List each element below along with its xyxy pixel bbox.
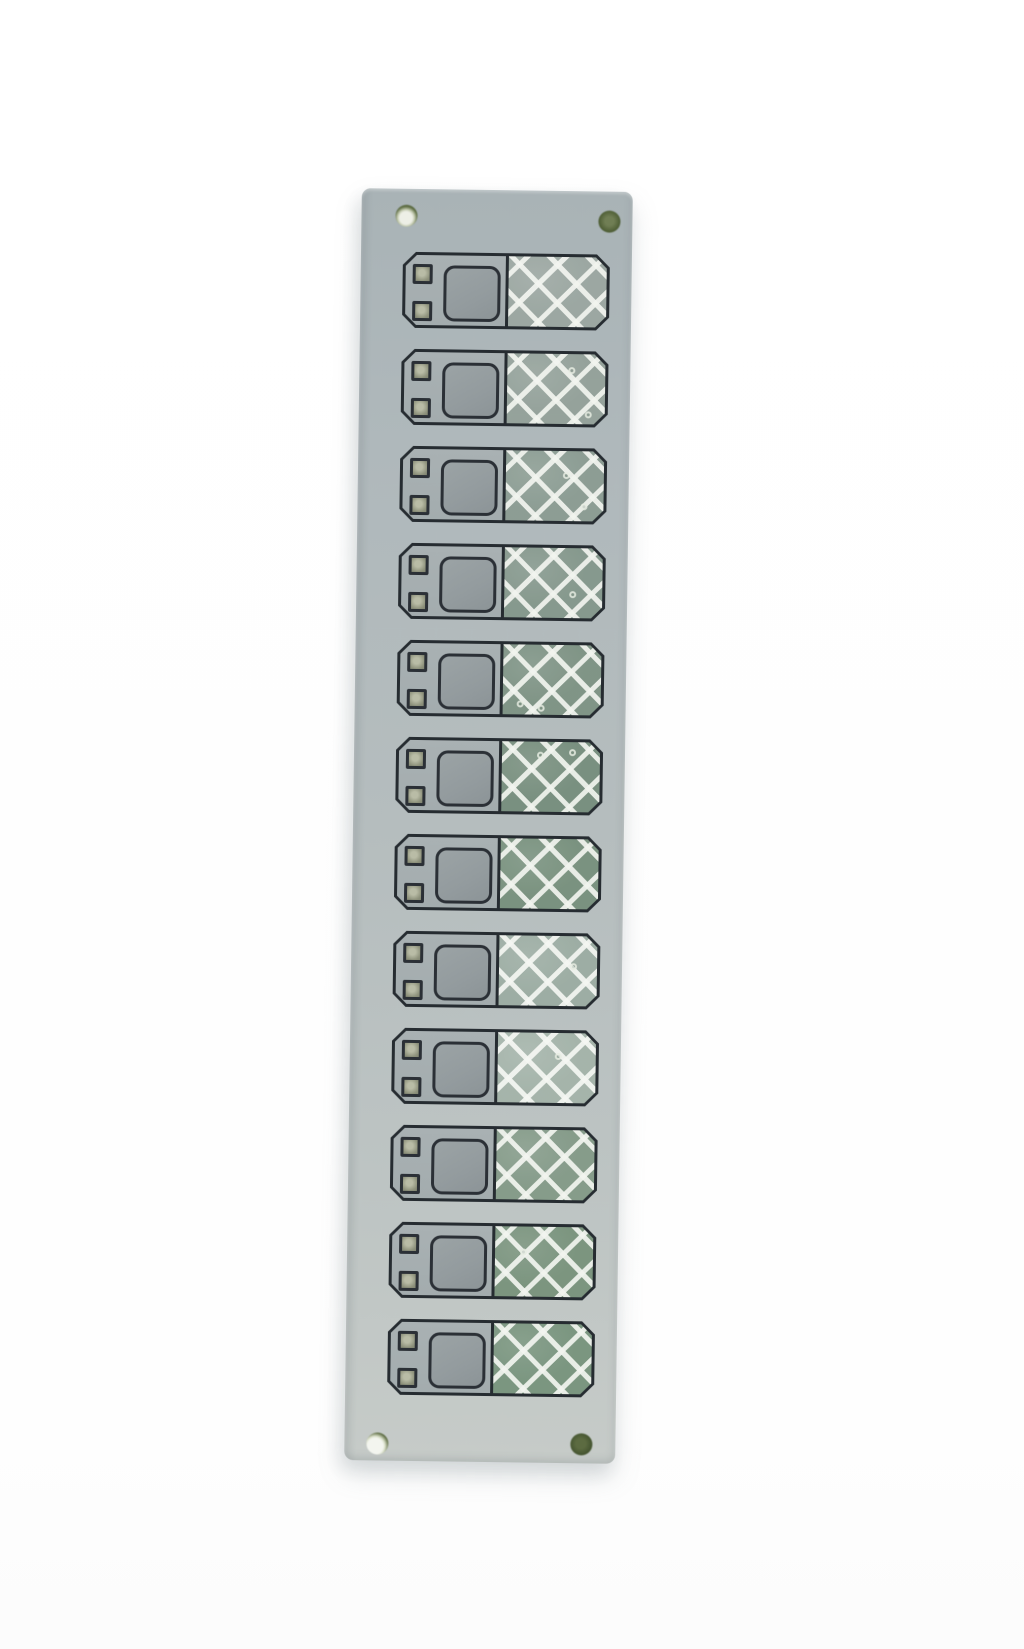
- small-contact-pad-bottom: [400, 1174, 420, 1194]
- electrode-left-region-outline: [391, 1028, 498, 1105]
- circuit-unit-12: [387, 1319, 595, 1398]
- small-contact-pad-top: [413, 264, 433, 284]
- small-contact-pad-bottom: [403, 980, 423, 1000]
- large-contact-pad: [443, 265, 501, 322]
- circuit-unit-8: [392, 931, 600, 1010]
- crosshatch-electrode-surface: [493, 1323, 592, 1394]
- crosshatch-electrode-outline: [504, 350, 609, 427]
- circuit-unit-6: [395, 737, 603, 816]
- glaze-bubble-speck: [569, 591, 576, 598]
- circuit-unit-5: [397, 640, 605, 719]
- electrode-left-region-outline: [401, 349, 508, 426]
- electrode-left-region-outline: [387, 1319, 494, 1396]
- crosshatch-electrode-surface: [504, 547, 603, 618]
- electrode-left-surface: [397, 837, 498, 908]
- electrode-left-region-outline: [388, 1222, 495, 1299]
- photo-background: [0, 0, 1024, 1649]
- small-contact-pad-bottom: [405, 786, 425, 806]
- glaze-bubble-speck: [516, 700, 523, 707]
- mounting-hole-bottom-right: [570, 1433, 592, 1455]
- large-contact-pad: [442, 362, 500, 419]
- small-contact-pad-bottom: [397, 1368, 417, 1388]
- small-contact-pad-top: [406, 749, 426, 769]
- circuit-unit-4: [398, 543, 606, 622]
- large-contact-pad: [431, 1138, 489, 1195]
- crosshatch-electrode-surface: [501, 741, 600, 812]
- electrode-left-region-outline: [394, 834, 501, 911]
- crosshatch-electrode-surface: [507, 353, 606, 424]
- crosshatch-electrode-outline: [505, 253, 610, 330]
- electrode-left-region-outline: [398, 543, 505, 620]
- crosshatch-electrode-outline: [490, 1320, 595, 1397]
- crosshatch-electrode-outline: [498, 738, 603, 815]
- glaze-bubble-speck: [581, 503, 588, 510]
- small-contact-pad-top: [398, 1331, 418, 1351]
- electrode-left-surface: [405, 255, 506, 326]
- circuit-unit-10: [390, 1125, 598, 1204]
- glaze-bubble-speck: [520, 1249, 527, 1256]
- crosshatch-electrode-outline: [493, 1126, 598, 1203]
- glaze-bubble-speck: [537, 751, 544, 758]
- crosshatch-electrode-surface: [496, 1129, 595, 1200]
- electrode-left-surface: [401, 546, 502, 617]
- small-contact-pad-top: [399, 1234, 419, 1254]
- large-contact-pad: [440, 459, 498, 516]
- crosshatch-electrode-surface: [497, 1032, 596, 1103]
- small-contact-pad-top: [402, 1040, 422, 1060]
- electrode-left-surface: [396, 934, 497, 1005]
- small-contact-pad-top: [403, 943, 423, 963]
- large-contact-pad: [435, 847, 493, 904]
- glaze-bubble-speck: [585, 412, 592, 419]
- electrode-left-region-outline: [390, 1125, 497, 1202]
- crosshatch-electrode-outline: [494, 1029, 599, 1106]
- circuit-unit-7: [394, 834, 602, 913]
- electrode-left-surface: [394, 1031, 495, 1102]
- small-contact-pad-top: [410, 458, 430, 478]
- electrode-left-region-outline: [397, 640, 504, 717]
- electrode-left-surface: [391, 1225, 492, 1296]
- small-contact-pad-bottom: [409, 495, 429, 515]
- mounting-hole-top-left: [395, 205, 417, 227]
- small-contact-pad-top: [407, 652, 427, 672]
- circuit-unit-3: [399, 446, 607, 525]
- electrode-left-surface: [404, 352, 505, 423]
- crosshatch-electrode-surface: [503, 644, 602, 715]
- circuit-unit-9: [391, 1028, 599, 1107]
- circuit-unit-array: [387, 252, 610, 1398]
- electrode-left-surface: [390, 1322, 491, 1393]
- circuit-unit-11: [388, 1222, 596, 1301]
- large-contact-pad: [436, 750, 494, 807]
- glaze-bubble-speck: [569, 749, 576, 756]
- crosshatch-electrode-outline: [491, 1223, 596, 1300]
- small-contact-pad-top: [411, 361, 431, 381]
- crosshatch-electrode-surface: [494, 1226, 593, 1297]
- small-contact-pad-bottom: [412, 301, 432, 321]
- crosshatch-electrode-outline: [500, 641, 605, 718]
- crosshatch-electrode-outline: [497, 835, 602, 912]
- electrode-left-surface: [400, 643, 501, 714]
- electrode-left-region-outline: [402, 252, 509, 329]
- crosshatch-electrode-outline: [502, 447, 607, 524]
- circuit-unit-2: [401, 349, 609, 428]
- large-contact-pad: [432, 1041, 490, 1098]
- large-contact-pad: [439, 556, 497, 613]
- large-contact-pad: [428, 1332, 486, 1389]
- mounting-hole-bottom-left: [366, 1432, 388, 1454]
- glaze-bubble-speck: [555, 1053, 562, 1060]
- small-contact-pad-top: [400, 1137, 420, 1157]
- electrode-left-region-outline: [395, 737, 502, 814]
- small-contact-pad-bottom: [404, 883, 424, 903]
- crosshatch-electrode-surface: [508, 256, 607, 327]
- large-contact-pad: [438, 653, 496, 710]
- glaze-bubble-speck: [568, 367, 575, 374]
- large-contact-pad: [434, 944, 492, 1001]
- mounting-hole-top-right: [598, 210, 620, 232]
- crosshatch-electrode-surface: [505, 450, 604, 521]
- electrode-left-region-outline: [399, 446, 506, 523]
- large-contact-pad: [429, 1235, 487, 1292]
- crosshatch-electrode-outline: [495, 932, 600, 1009]
- electrode-left-surface: [398, 740, 499, 811]
- small-contact-pad-bottom: [407, 689, 427, 709]
- ceramic-substrate-panel: [344, 188, 633, 1464]
- small-contact-pad-top: [404, 846, 424, 866]
- electrode-left-region-outline: [392, 931, 499, 1008]
- glaze-bubble-speck: [570, 963, 577, 970]
- small-contact-pad-bottom: [399, 1271, 419, 1291]
- electrode-left-surface: [393, 1128, 494, 1199]
- small-contact-pad-bottom: [411, 398, 431, 418]
- crosshatch-electrode-surface: [498, 935, 597, 1006]
- glaze-bubble-speck: [538, 705, 545, 712]
- electrode-left-surface: [402, 449, 503, 520]
- circuit-unit-1: [402, 252, 610, 331]
- crosshatch-electrode-surface: [500, 838, 599, 909]
- crosshatch-electrode-outline: [501, 544, 606, 621]
- small-contact-pad-top: [408, 555, 428, 575]
- glaze-bubble-speck: [563, 472, 570, 479]
- small-contact-pad-bottom: [408, 592, 428, 612]
- small-contact-pad-bottom: [401, 1077, 421, 1097]
